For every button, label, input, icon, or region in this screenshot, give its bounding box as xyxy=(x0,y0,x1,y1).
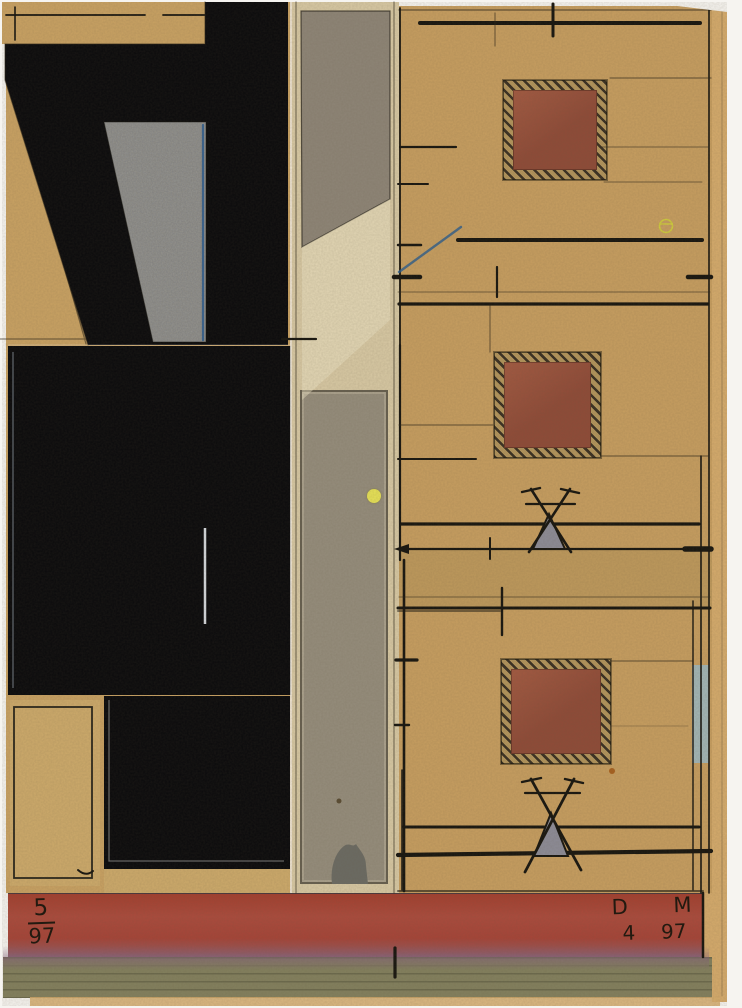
date-month: 4 xyxy=(622,923,635,943)
date-year: 97 xyxy=(661,921,687,942)
edition-denominator: 97 xyxy=(28,924,56,948)
signature-date: 4 97 xyxy=(612,921,693,944)
artwork-scan: 5 97 D M 4 97 xyxy=(0,0,742,1008)
paper-grain-texture xyxy=(2,2,727,1006)
linework-and-shapes-layer xyxy=(0,0,742,1008)
artist-signature: D M 4 97 xyxy=(611,895,693,944)
edition-number: 5 97 xyxy=(27,897,55,948)
initial-m: M xyxy=(673,895,692,917)
signature-initials: D M xyxy=(611,895,692,919)
edition-numerator: 5 xyxy=(27,897,55,925)
initial-d: D xyxy=(611,897,628,919)
